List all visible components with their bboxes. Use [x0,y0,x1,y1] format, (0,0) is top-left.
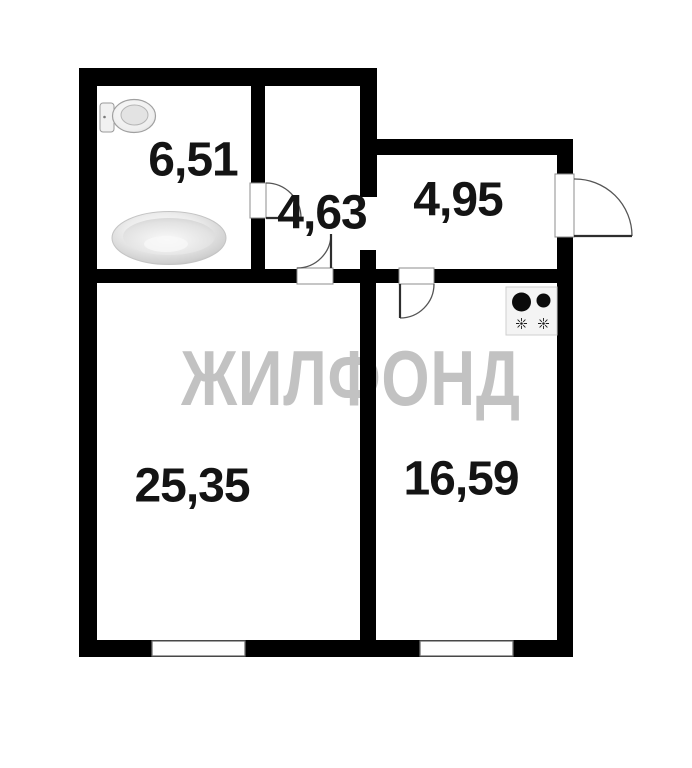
entrance-door [555,174,632,237]
area-label-bathroom: 6,51 [148,133,237,188]
living-room-window [152,641,245,656]
toilet-icon [100,100,156,133]
kitchen-door [399,268,434,318]
area-label-kitchen: 16,59 [403,452,518,507]
area-label-living-room: 25,35 [134,459,249,514]
kitchen-window [420,641,513,656]
bathtub-icon [112,212,226,265]
plan-overlay [0,0,692,768]
floor-plan: ЖИЛФОНД [0,0,692,768]
stove-icon [506,287,557,335]
area-label-hallway: 4,63 [277,186,366,241]
hallway-door [297,234,333,284]
area-label-entry: 4,95 [413,173,502,228]
